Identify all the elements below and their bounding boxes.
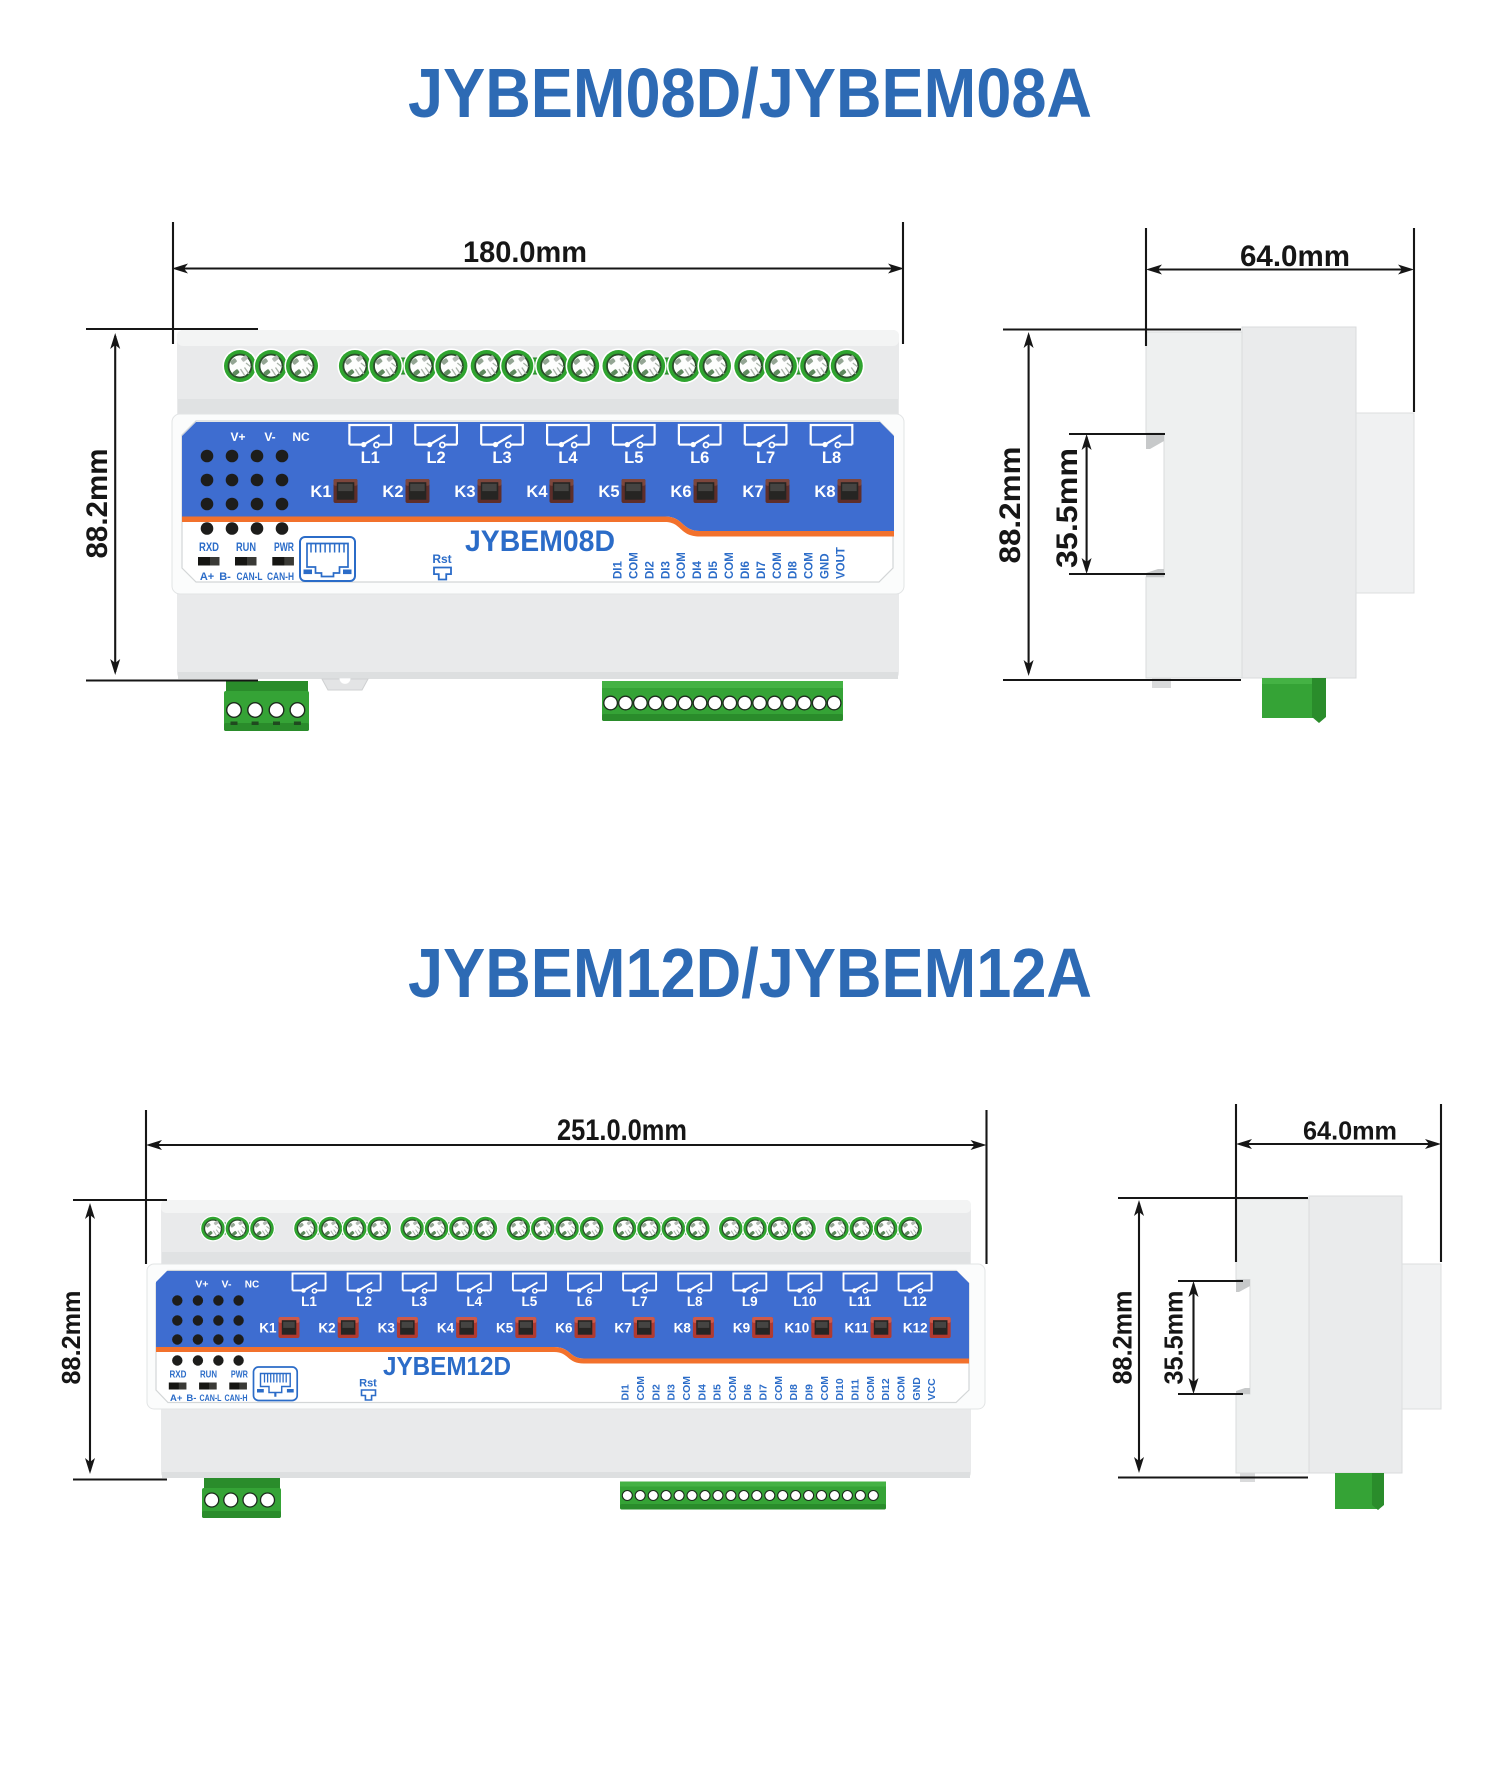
svg-text:L8: L8 (822, 449, 841, 467)
svg-text:K1: K1 (259, 1321, 277, 1336)
svg-text:RUN: RUN (236, 542, 256, 554)
svg-text:L3: L3 (492, 449, 511, 467)
svg-text:COM: COM (635, 1376, 647, 1401)
svg-text:B-: B- (219, 571, 231, 583)
svg-text:DI2: DI2 (650, 1384, 662, 1401)
svg-text:K2: K2 (382, 483, 403, 501)
svg-text:COM: COM (865, 1376, 877, 1401)
svg-text:CAN-H: CAN-H (225, 1393, 248, 1404)
svg-text:K9: K9 (733, 1321, 750, 1336)
svg-text:COM: COM (804, 552, 816, 579)
svg-text:88.2mm: 88.2mm (1108, 1291, 1138, 1385)
svg-text:DI8: DI8 (788, 1384, 800, 1401)
svg-text:DI4: DI4 (696, 1384, 708, 1401)
svg-text:88.2mm: 88.2mm (994, 447, 1027, 564)
svg-text:88.2mm: 88.2mm (56, 1291, 86, 1385)
svg-text:K6: K6 (555, 1321, 573, 1336)
svg-text:CAN-L: CAN-L (237, 571, 263, 583)
svg-text:COM: COM (628, 552, 640, 579)
svg-text:A+: A+ (170, 1393, 183, 1404)
svg-text:COM: COM (773, 1376, 785, 1401)
svg-text:V-: V- (264, 430, 275, 444)
svg-text:COM: COM (681, 1376, 693, 1401)
svg-text:DI3: DI3 (666, 1384, 678, 1401)
svg-text:L7: L7 (756, 449, 775, 467)
svg-text:JYBEM08D/JYBEM08A: JYBEM08D/JYBEM08A (408, 54, 1092, 132)
svg-text:CAN-L: CAN-L (200, 1393, 222, 1404)
svg-text:K5: K5 (598, 483, 619, 501)
svg-text:V-: V- (222, 1279, 232, 1291)
svg-text:PWR: PWR (274, 542, 295, 554)
svg-text:GND: GND (911, 1377, 923, 1401)
svg-text:L7: L7 (632, 1294, 648, 1309)
svg-text:DI1: DI1 (613, 561, 625, 580)
svg-text:K11: K11 (844, 1321, 869, 1336)
svg-text:64.0mm: 64.0mm (1303, 1116, 1397, 1146)
svg-text:V+: V+ (195, 1279, 208, 1291)
svg-text:251.0.0mm: 251.0.0mm (557, 1114, 687, 1147)
svg-text:35.5mm: 35.5mm (1051, 448, 1084, 568)
svg-text:GND: GND (820, 553, 832, 579)
svg-text:DI3: DI3 (660, 561, 672, 579)
svg-text:DI11: DI11 (850, 1379, 862, 1401)
svg-text:K8: K8 (674, 1321, 692, 1336)
svg-text:K3: K3 (454, 483, 475, 501)
svg-text:COM: COM (772, 552, 784, 579)
svg-text:L6: L6 (577, 1294, 593, 1309)
svg-text:JYBEM08D: JYBEM08D (465, 525, 615, 558)
svg-text:COM: COM (896, 1376, 908, 1401)
svg-text:K8: K8 (814, 483, 835, 501)
svg-text:L4: L4 (558, 449, 578, 467)
svg-text:K4: K4 (437, 1321, 455, 1336)
svg-text:RXD: RXD (170, 1370, 187, 1381)
svg-text:NC: NC (245, 1280, 259, 1291)
svg-text:DI7: DI7 (756, 561, 768, 579)
svg-text:DI10: DI10 (834, 1378, 846, 1400)
svg-text:COM: COM (819, 1376, 831, 1401)
svg-text:DI9: DI9 (804, 1384, 816, 1401)
svg-text:DI12: DI12 (880, 1378, 892, 1400)
svg-text:DI5: DI5 (708, 561, 720, 580)
svg-text:L2: L2 (426, 449, 445, 467)
svg-text:L10: L10 (793, 1294, 816, 1309)
svg-text:DI5: DI5 (712, 1384, 724, 1401)
svg-text:L9: L9 (742, 1294, 758, 1309)
svg-text:RUN: RUN (200, 1370, 217, 1381)
svg-text:L2: L2 (356, 1294, 372, 1309)
svg-text:Rst: Rst (432, 552, 451, 566)
svg-text:L3: L3 (411, 1294, 427, 1309)
svg-text:K5: K5 (496, 1321, 514, 1336)
svg-text:DI2: DI2 (644, 561, 656, 579)
svg-text:DI4: DI4 (692, 561, 704, 580)
svg-text:VOUT: VOUT (836, 547, 848, 579)
svg-text:COM: COM (727, 1376, 739, 1401)
svg-text:NC: NC (292, 430, 310, 444)
svg-text:V+: V+ (230, 430, 245, 444)
svg-text:K7: K7 (742, 483, 763, 501)
svg-text:CAN-H: CAN-H (267, 571, 294, 583)
svg-text:K1: K1 (310, 483, 331, 501)
svg-text:64.0mm: 64.0mm (1240, 240, 1350, 273)
svg-text:B-: B- (186, 1393, 196, 1404)
svg-text:JYBEM12D/JYBEM12A: JYBEM12D/JYBEM12A (408, 934, 1092, 1012)
svg-text:VCC: VCC (926, 1378, 938, 1401)
svg-text:K7: K7 (614, 1321, 631, 1336)
svg-text:K4: K4 (526, 483, 548, 501)
svg-text:DI6: DI6 (742, 1384, 754, 1401)
svg-text:K12: K12 (903, 1321, 928, 1336)
svg-text:L4: L4 (466, 1294, 482, 1309)
svg-text:PWR: PWR (231, 1370, 249, 1381)
svg-text:DI7: DI7 (758, 1384, 770, 1401)
svg-text:K6: K6 (670, 483, 691, 501)
svg-text:RXD: RXD (199, 542, 219, 554)
svg-text:L11: L11 (849, 1294, 872, 1309)
svg-text:A+: A+ (200, 571, 214, 583)
svg-text:DI6: DI6 (740, 561, 752, 579)
svg-text:Rst: Rst (359, 1378, 377, 1390)
svg-text:L1: L1 (361, 449, 380, 467)
svg-text:DI8: DI8 (788, 561, 800, 580)
svg-text:K10: K10 (785, 1321, 810, 1336)
svg-text:JYBEM12D: JYBEM12D (383, 1351, 511, 1381)
svg-text:COM: COM (676, 552, 688, 579)
svg-text:K2: K2 (318, 1321, 335, 1336)
svg-text:COM: COM (724, 552, 736, 579)
svg-text:L5: L5 (522, 1294, 538, 1309)
svg-text:DI1: DI1 (620, 1384, 632, 1401)
svg-text:180.0mm: 180.0mm (463, 236, 587, 269)
svg-text:L1: L1 (301, 1294, 317, 1309)
svg-text:35.5mm: 35.5mm (1159, 1291, 1189, 1385)
svg-text:88.2mm: 88.2mm (81, 449, 114, 559)
svg-text:L8: L8 (687, 1294, 703, 1309)
svg-text:L6: L6 (690, 449, 709, 467)
svg-text:L5: L5 (624, 449, 643, 467)
svg-text:K3: K3 (378, 1321, 396, 1336)
svg-text:L12: L12 (903, 1294, 926, 1309)
